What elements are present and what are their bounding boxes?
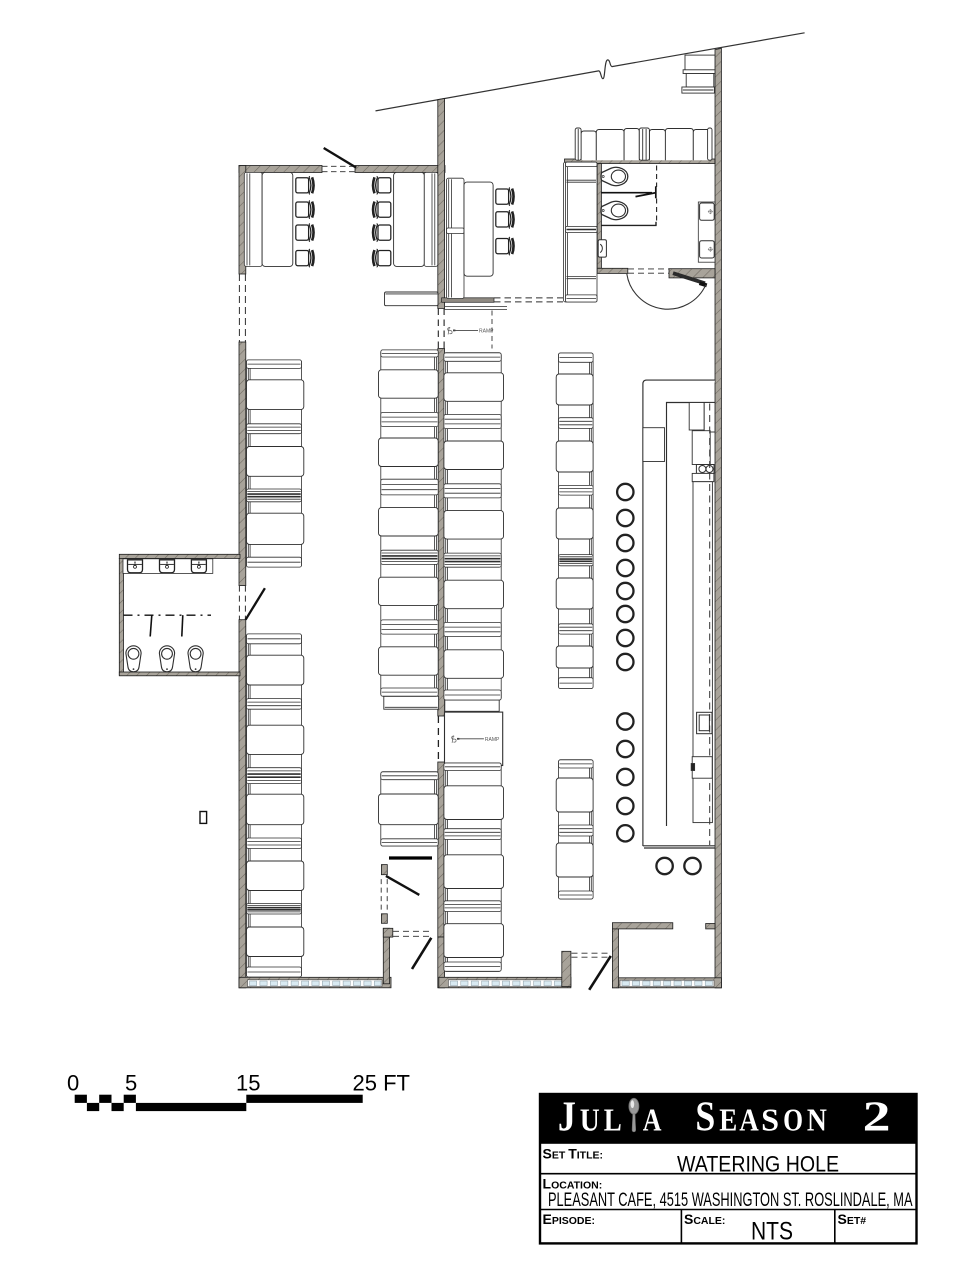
svg-text:N: N — [807, 1102, 827, 1138]
svg-text:A: A — [739, 1102, 759, 1138]
svg-text:5: 5 — [125, 1071, 137, 1096]
svg-text:A: A — [643, 1102, 662, 1138]
svg-text:RAMP: RAMP — [485, 737, 500, 743]
svg-text:L: L — [604, 1102, 622, 1138]
svg-text:S: S — [761, 1102, 779, 1138]
svg-text:S: S — [695, 1095, 715, 1141]
svg-text:J: J — [558, 1095, 576, 1141]
svg-text:15: 15 — [236, 1071, 260, 1096]
svg-text:U: U — [580, 1102, 600, 1138]
svg-text:2: 2 — [863, 1095, 891, 1141]
svg-text:NTS: NTS — [751, 1218, 793, 1246]
svg-text:O: O — [783, 1102, 803, 1138]
svg-text:25 FT: 25 FT — [353, 1071, 410, 1096]
svg-text:RAMP: RAMP — [479, 329, 494, 335]
svg-text:WATERING HOLE: WATERING HOLE — [677, 1152, 839, 1177]
svg-text:0: 0 — [67, 1071, 79, 1096]
svg-text:PLEASANT CAFE, 4515 WASHINGTON: PLEASANT CAFE, 4515 WASHINGTON ST. ROSLI… — [548, 1190, 913, 1211]
svg-text:E: E — [719, 1102, 737, 1138]
